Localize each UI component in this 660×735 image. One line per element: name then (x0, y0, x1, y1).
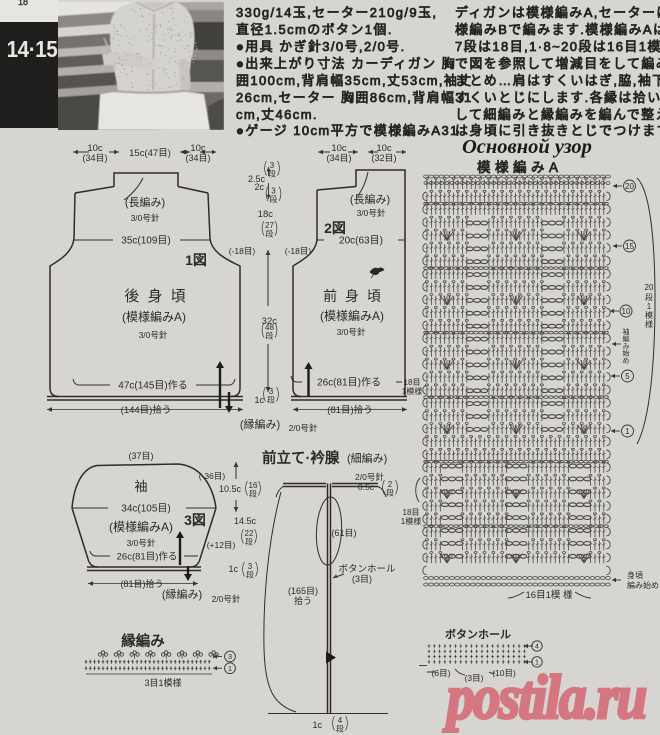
svg-text:(模様編みA): (模様編みA) (320, 308, 384, 323)
svg-text:3: 3 (228, 652, 232, 661)
svg-text:(81目)拾う: (81目)拾う (327, 404, 372, 416)
svg-text:(3目): (3目) (352, 574, 372, 584)
svg-text:(-36目): (-36目) (199, 471, 226, 481)
svg-text:3/0号針: 3/0号針 (127, 538, 156, 548)
svg-text:20: 20 (645, 283, 654, 292)
svg-text:2/0号針: 2/0号針 (289, 423, 318, 433)
svg-text:3図: 3図 (184, 512, 206, 528)
svg-text:1c: 1c (254, 395, 264, 405)
svg-text:0.5c: 0.5c (358, 482, 375, 492)
svg-text:前 身 頃: 前 身 頃 (323, 288, 383, 304)
svg-text:段: 段 (245, 537, 253, 547)
svg-text:20: 20 (625, 182, 634, 191)
svg-text:2図: 2図 (324, 220, 346, 236)
svg-text:段: 段 (267, 395, 275, 405)
svg-text:(144目)拾う: (144目)拾う (121, 404, 172, 416)
svg-text:4: 4 (535, 644, 539, 651)
svg-text:編: 編 (623, 334, 630, 343)
svg-text:拾う: 拾う (294, 595, 312, 606)
svg-text:15: 15 (625, 242, 634, 251)
svg-text:(縁編み): (縁編み) (240, 417, 280, 431)
svg-text:後 身 頃: 後 身 頃 (124, 288, 187, 305)
svg-text:3目1模様: 3目1模様 (144, 677, 181, 688)
svg-text:16目1模 様: 16目1模 様 (526, 589, 573, 601)
svg-text:1: 1 (625, 427, 630, 436)
svg-text:(-18目): (-18目) (285, 246, 312, 256)
svg-text:み: み (623, 342, 630, 350)
svg-text:2/0号針: 2/0号針 (355, 472, 384, 482)
svg-text:1図: 1図 (185, 252, 207, 268)
svg-text:(61目): (61目) (331, 528, 356, 538)
svg-text:(-18目): (-18目) (229, 246, 256, 256)
svg-text:3/0号針: 3/0号針 (357, 208, 386, 218)
svg-text:(細編み): (細編み) (347, 451, 387, 465)
svg-text:18c: 18c (258, 209, 274, 220)
svg-text:め: め (623, 357, 630, 365)
svg-text:(縁編み): (縁編み) (162, 587, 202, 601)
svg-text:段: 段 (386, 488, 394, 498)
svg-text:模: 模 (645, 310, 653, 320)
svg-text:1c: 1c (312, 720, 322, 730)
svg-text:5: 5 (625, 372, 630, 381)
svg-text:袖: 袖 (623, 327, 630, 336)
svg-text:10.5c: 10.5c (219, 484, 242, 494)
svg-text:段: 段 (270, 194, 278, 204)
svg-text:ボタンホール: ボタンホール (445, 627, 511, 641)
svg-text:編み始め: 編み始め (627, 580, 659, 590)
svg-text:(32目): (32目) (371, 153, 396, 163)
svg-text:(165目): (165目) (288, 586, 318, 596)
svg-text:3/0号針: 3/0号針 (131, 213, 160, 223)
svg-text:1c: 1c (228, 564, 238, 574)
svg-text:1: 1 (228, 664, 232, 673)
svg-text:(長編み): (長編み) (125, 195, 165, 209)
svg-text:縁編み: 縁編み (121, 632, 165, 650)
svg-text:26c(81目)作る: 26c(81目)作る (317, 377, 381, 389)
svg-text:34c(105目): 34c(105目) (121, 504, 170, 515)
svg-text:(34目): (34目) (185, 153, 210, 163)
svg-text:段: 段 (246, 570, 254, 580)
svg-text:段: 段 (249, 489, 257, 499)
svg-text:袖: 袖 (134, 479, 147, 494)
svg-text:(+12目): (+12目) (207, 540, 236, 550)
svg-text:47c(145目)作る: 47c(145目)作る (118, 380, 187, 392)
svg-text:1模様: 1模様 (402, 386, 422, 396)
svg-text:35c(109目): 35c(109目) (121, 236, 170, 247)
svg-text:20c(63目): 20c(63目) (339, 236, 383, 247)
svg-text:15c(47目): 15c(47目) (129, 148, 171, 159)
svg-text:3/0号針: 3/0号針 (337, 327, 366, 337)
svg-text:(37目): (37目) (128, 451, 153, 461)
svg-text:前立て·衿腺: 前立て·衿腺 (262, 449, 340, 467)
svg-text:段: 段 (266, 229, 274, 239)
svg-text:(34目): (34目) (82, 153, 107, 163)
svg-text:段: 段 (645, 292, 653, 302)
svg-text:3/0号針: 3/0号針 (139, 330, 168, 340)
svg-text:1模様: 1模様 (401, 516, 421, 526)
svg-text:26c(81目)作る: 26c(81目)作る (117, 551, 178, 563)
svg-text:段: 段 (266, 331, 274, 341)
svg-text:2/0号針: 2/0号針 (212, 594, 241, 604)
svg-text:1: 1 (647, 302, 652, 311)
svg-text:様: 様 (645, 319, 653, 329)
svg-text:(長編み): (長編み) (350, 192, 390, 206)
svg-text:18目: 18目 (403, 508, 420, 517)
svg-text:(34目): (34目) (326, 153, 351, 163)
svg-text:14.5c: 14.5c (234, 516, 257, 526)
svg-text:(81目)拾う: (81目)拾う (120, 578, 163, 589)
svg-text:18目: 18目 (404, 378, 421, 387)
svg-text:段: 段 (336, 724, 344, 734)
svg-text:始: 始 (623, 349, 630, 358)
svg-text:2c: 2c (254, 182, 264, 192)
svg-text:10: 10 (622, 307, 631, 316)
svg-text:身頃: 身頃 (627, 570, 643, 580)
svg-text:(模様編みA): (模様編みA) (109, 519, 173, 534)
svg-text:(模様編みA): (模様編みA) (122, 309, 186, 324)
